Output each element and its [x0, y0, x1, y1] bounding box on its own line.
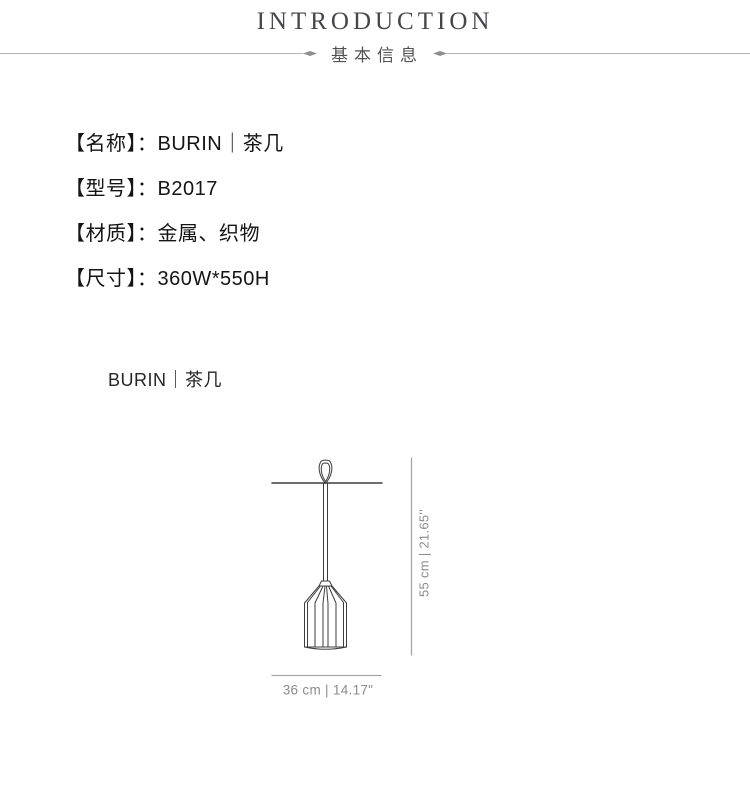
section-header: 基本信息 [0, 44, 750, 63]
lampshade [305, 581, 347, 649]
product-intro-page: INTRODUCTION 基本信息 【名称】：BURIN｜茶几 【型号】：B20… [0, 0, 750, 809]
width-dimension-label: 36 cm | 14.17" [283, 683, 374, 698]
spec-name: 【名称】：BURIN｜茶几 [65, 133, 284, 155]
diamond-icon-right [433, 51, 447, 56]
height-dimension-label: 55 cm | 21.65'' [417, 509, 432, 597]
divider-line-left [0, 53, 303, 54]
spec-model: 【型号】：B2017 [65, 178, 284, 200]
page-title: INTRODUCTION [0, 8, 750, 36]
spec-list: 【名称】：BURIN｜茶几 【型号】：B2017 【材质】：金属、织物 【尺寸】… [65, 133, 284, 313]
hanging-loop [319, 460, 332, 483]
pendant-lamp-drawing [240, 445, 470, 705]
spec-material: 【材质】：金属、织物 [65, 223, 284, 245]
dimension-diagram: 55 cm | 21.65'' 36 cm | 14.17" [240, 445, 470, 705]
cord [324, 484, 328, 582]
spec-size: 【尺寸】：360W*550H [65, 268, 284, 290]
section-title: 基本信息 [317, 41, 433, 66]
product-label: BURIN｜茶几 [108, 366, 222, 392]
diamond-icon-left [303, 51, 317, 56]
divider-line-right [447, 53, 750, 54]
